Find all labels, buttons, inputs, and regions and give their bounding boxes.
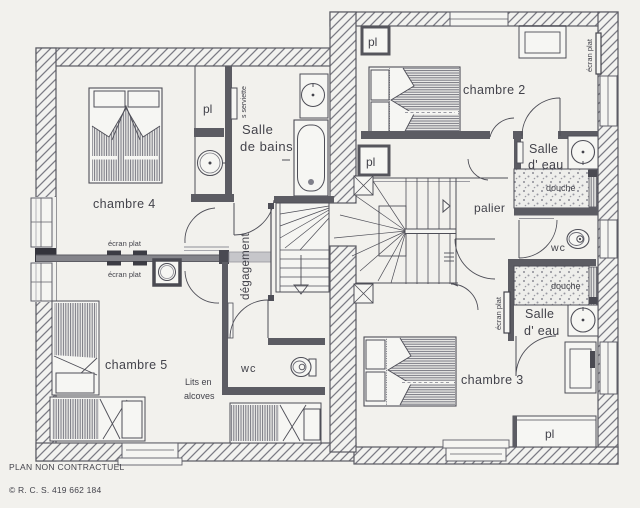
- svg-text:écran plat: écran plat: [108, 270, 142, 279]
- svg-text:écran plat: écran plat: [585, 38, 594, 72]
- svg-text:s serviette: s serviette: [241, 86, 248, 118]
- svg-text:palier: palier: [474, 201, 505, 215]
- svg-text:Salle: Salle: [242, 122, 273, 137]
- svg-text:Salle: Salle: [529, 142, 558, 156]
- svg-text:Lits en: Lits en: [185, 377, 212, 387]
- svg-text:pl: pl: [545, 427, 554, 441]
- svg-text:pl: pl: [203, 102, 212, 116]
- svg-text:écran plat: écran plat: [108, 239, 142, 248]
- svg-text:© R. C. S. 419 662 184: © R. C. S. 419 662 184: [9, 485, 101, 495]
- svg-text:chambre 4: chambre 4: [93, 197, 156, 211]
- svg-text:pl: pl: [366, 155, 375, 169]
- svg-text:wc: wc: [550, 242, 566, 254]
- svg-text:Salle: Salle: [525, 307, 554, 321]
- svg-text:douche: douche: [551, 281, 581, 291]
- svg-text:écran plat: écran plat: [494, 296, 503, 330]
- svg-text:de bains: de bains: [240, 139, 293, 154]
- svg-text:chambre 2: chambre 2: [463, 83, 526, 97]
- svg-text:wc: wc: [240, 363, 256, 375]
- svg-text:alcoves: alcoves: [184, 391, 215, 401]
- svg-text:chambre 3: chambre 3: [461, 373, 524, 387]
- svg-text:douche: douche: [546, 183, 576, 193]
- svg-text:PLAN NON CONTRACTUEL: PLAN NON CONTRACTUEL: [9, 462, 125, 472]
- svg-text:dégagement: dégagement: [240, 233, 252, 300]
- svg-text:chambre 5: chambre 5: [105, 358, 168, 372]
- svg-text:pl: pl: [368, 35, 377, 49]
